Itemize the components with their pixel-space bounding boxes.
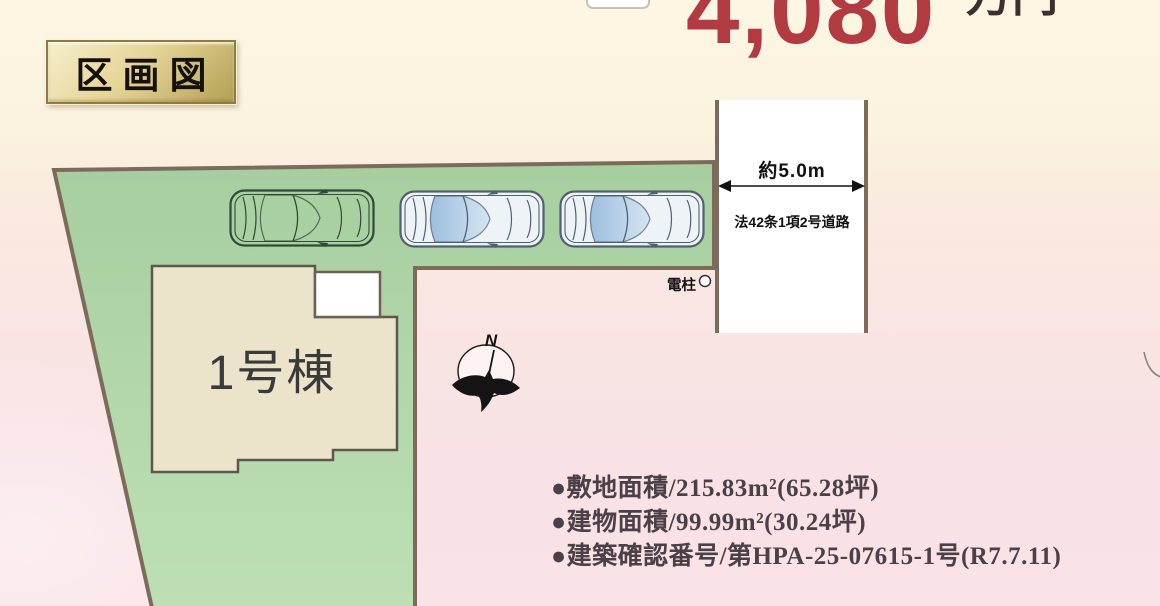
site-info-block: ●敷地面積/215.83m²(65.28坪) ●建物面積/99.99m²(30.…	[551, 472, 1061, 574]
car-outline-icon	[231, 189, 374, 247]
price-amount: 4,080	[686, 0, 936, 64]
cutoff-white-label	[586, 0, 650, 9]
cutoff-arc-decoration	[1144, 352, 1160, 377]
utility-pole-label: 電柱	[667, 276, 696, 294]
utility-pole-icon	[700, 276, 711, 287]
building-permit-line: ●建築確認番号/第HPA-25-07615-1号(R7.7.11)	[551, 540, 1061, 574]
car-icon	[401, 190, 544, 248]
road-width-label: 約5.0m	[758, 159, 825, 182]
north-label: N	[485, 331, 498, 350]
flyer-page: 約5.0m 法42条1項2号道路 電柱 1号棟 N 4,080 万円 区画図 ●…	[0, 0, 1160, 606]
compass-icon: N	[452, 331, 520, 412]
price-unit: 万円	[966, 0, 1058, 21]
road-name-label: 法42条1項2号道路	[734, 214, 850, 230]
site-area-line: ●敷地面積/215.83m²(65.28坪)	[551, 472, 1061, 506]
page-title: 区画図	[66, 45, 217, 99]
building-number-label: 1号棟	[208, 347, 337, 400]
building-area-line: ●建物面積/99.99m²(30.24坪)	[551, 506, 1061, 540]
car-icon	[561, 190, 704, 248]
house-porch	[315, 272, 380, 317]
title-badge: 区画図	[46, 40, 236, 104]
